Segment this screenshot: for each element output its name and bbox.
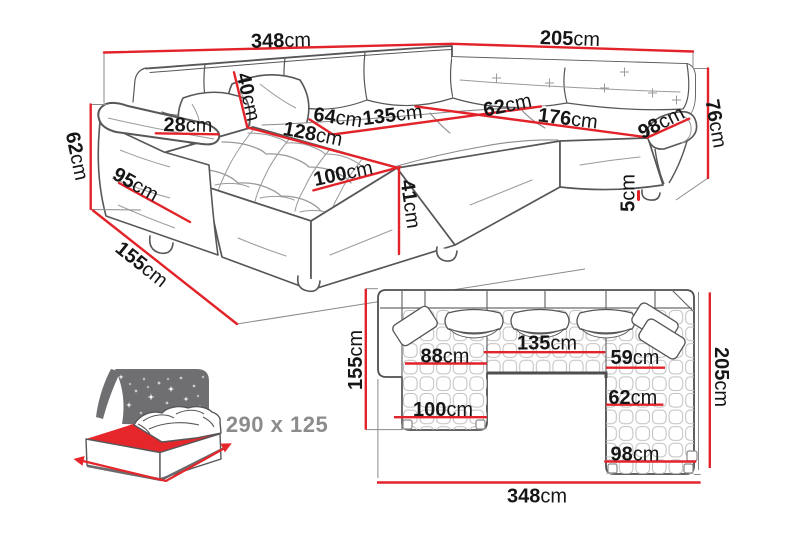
- svg-text:135cm: 135cm: [517, 333, 577, 355]
- svg-text:59cm: 59cm: [611, 347, 660, 369]
- svg-text:5cm: 5cm: [618, 174, 640, 212]
- svg-text:28cm: 28cm: [163, 114, 212, 137]
- svg-text:205cm: 205cm: [540, 27, 601, 51]
- svg-text:290 x 125: 290 x 125: [226, 412, 328, 437]
- svg-text:100cm: 100cm: [413, 399, 473, 421]
- svg-text:76cm: 76cm: [700, 98, 730, 150]
- svg-text:98cm: 98cm: [611, 444, 660, 466]
- svg-text:62cm: 62cm: [608, 387, 657, 409]
- svg-text:88cm: 88cm: [421, 346, 470, 368]
- svg-text:62cm: 62cm: [61, 130, 93, 182]
- svg-text:155cm: 155cm: [345, 330, 367, 390]
- svg-text:205cm: 205cm: [710, 347, 732, 407]
- svg-text:348cm: 348cm: [507, 486, 567, 508]
- svg-text:348cm: 348cm: [251, 29, 312, 53]
